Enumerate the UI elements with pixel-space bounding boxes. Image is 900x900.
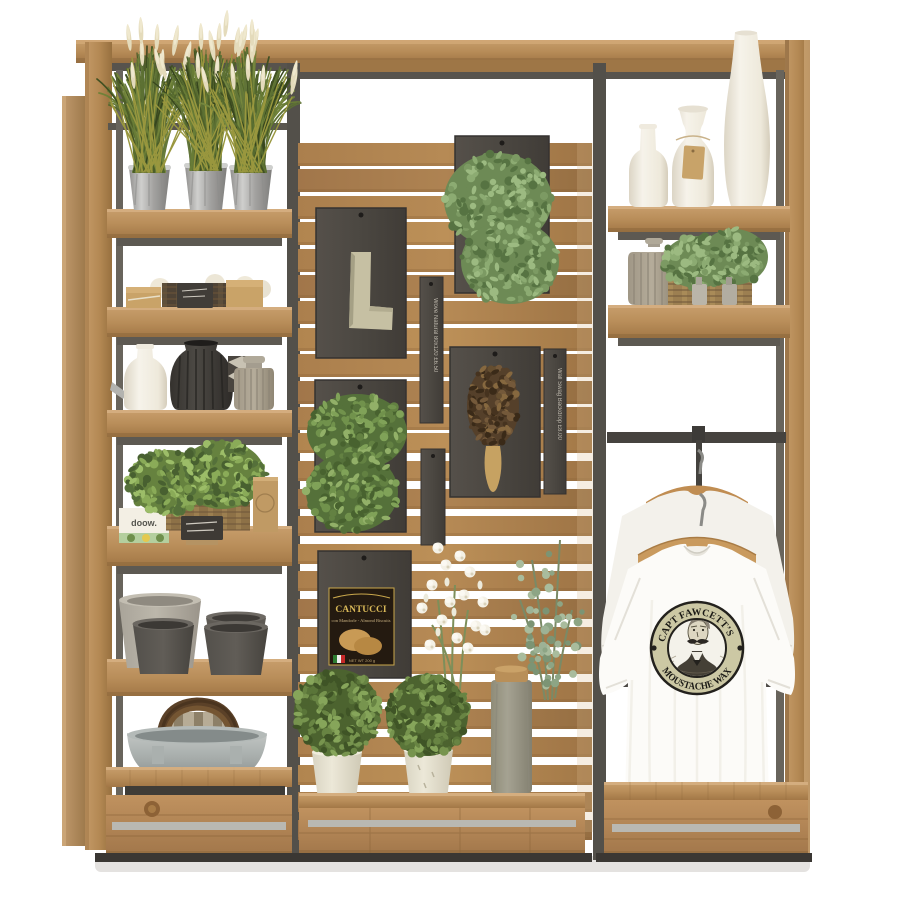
- svg-text:Wall Swag Backdrop £8.00: Wall Swag Backdrop £8.00: [556, 368, 562, 440]
- svg-text:doow.: doow.: [131, 518, 157, 528]
- svg-text:CANTUCCI: CANTUCCI: [335, 605, 387, 615]
- svg-text:con Mandorle - Almond Biscuits: con Mandorle - Almond Biscuits: [332, 618, 391, 623]
- svg-text:Wove Natural 80x120 £6.50: Wove Natural 80x120 £6.50: [432, 298, 438, 373]
- svg-text:NET WT 200 g: NET WT 200 g: [349, 658, 375, 663]
